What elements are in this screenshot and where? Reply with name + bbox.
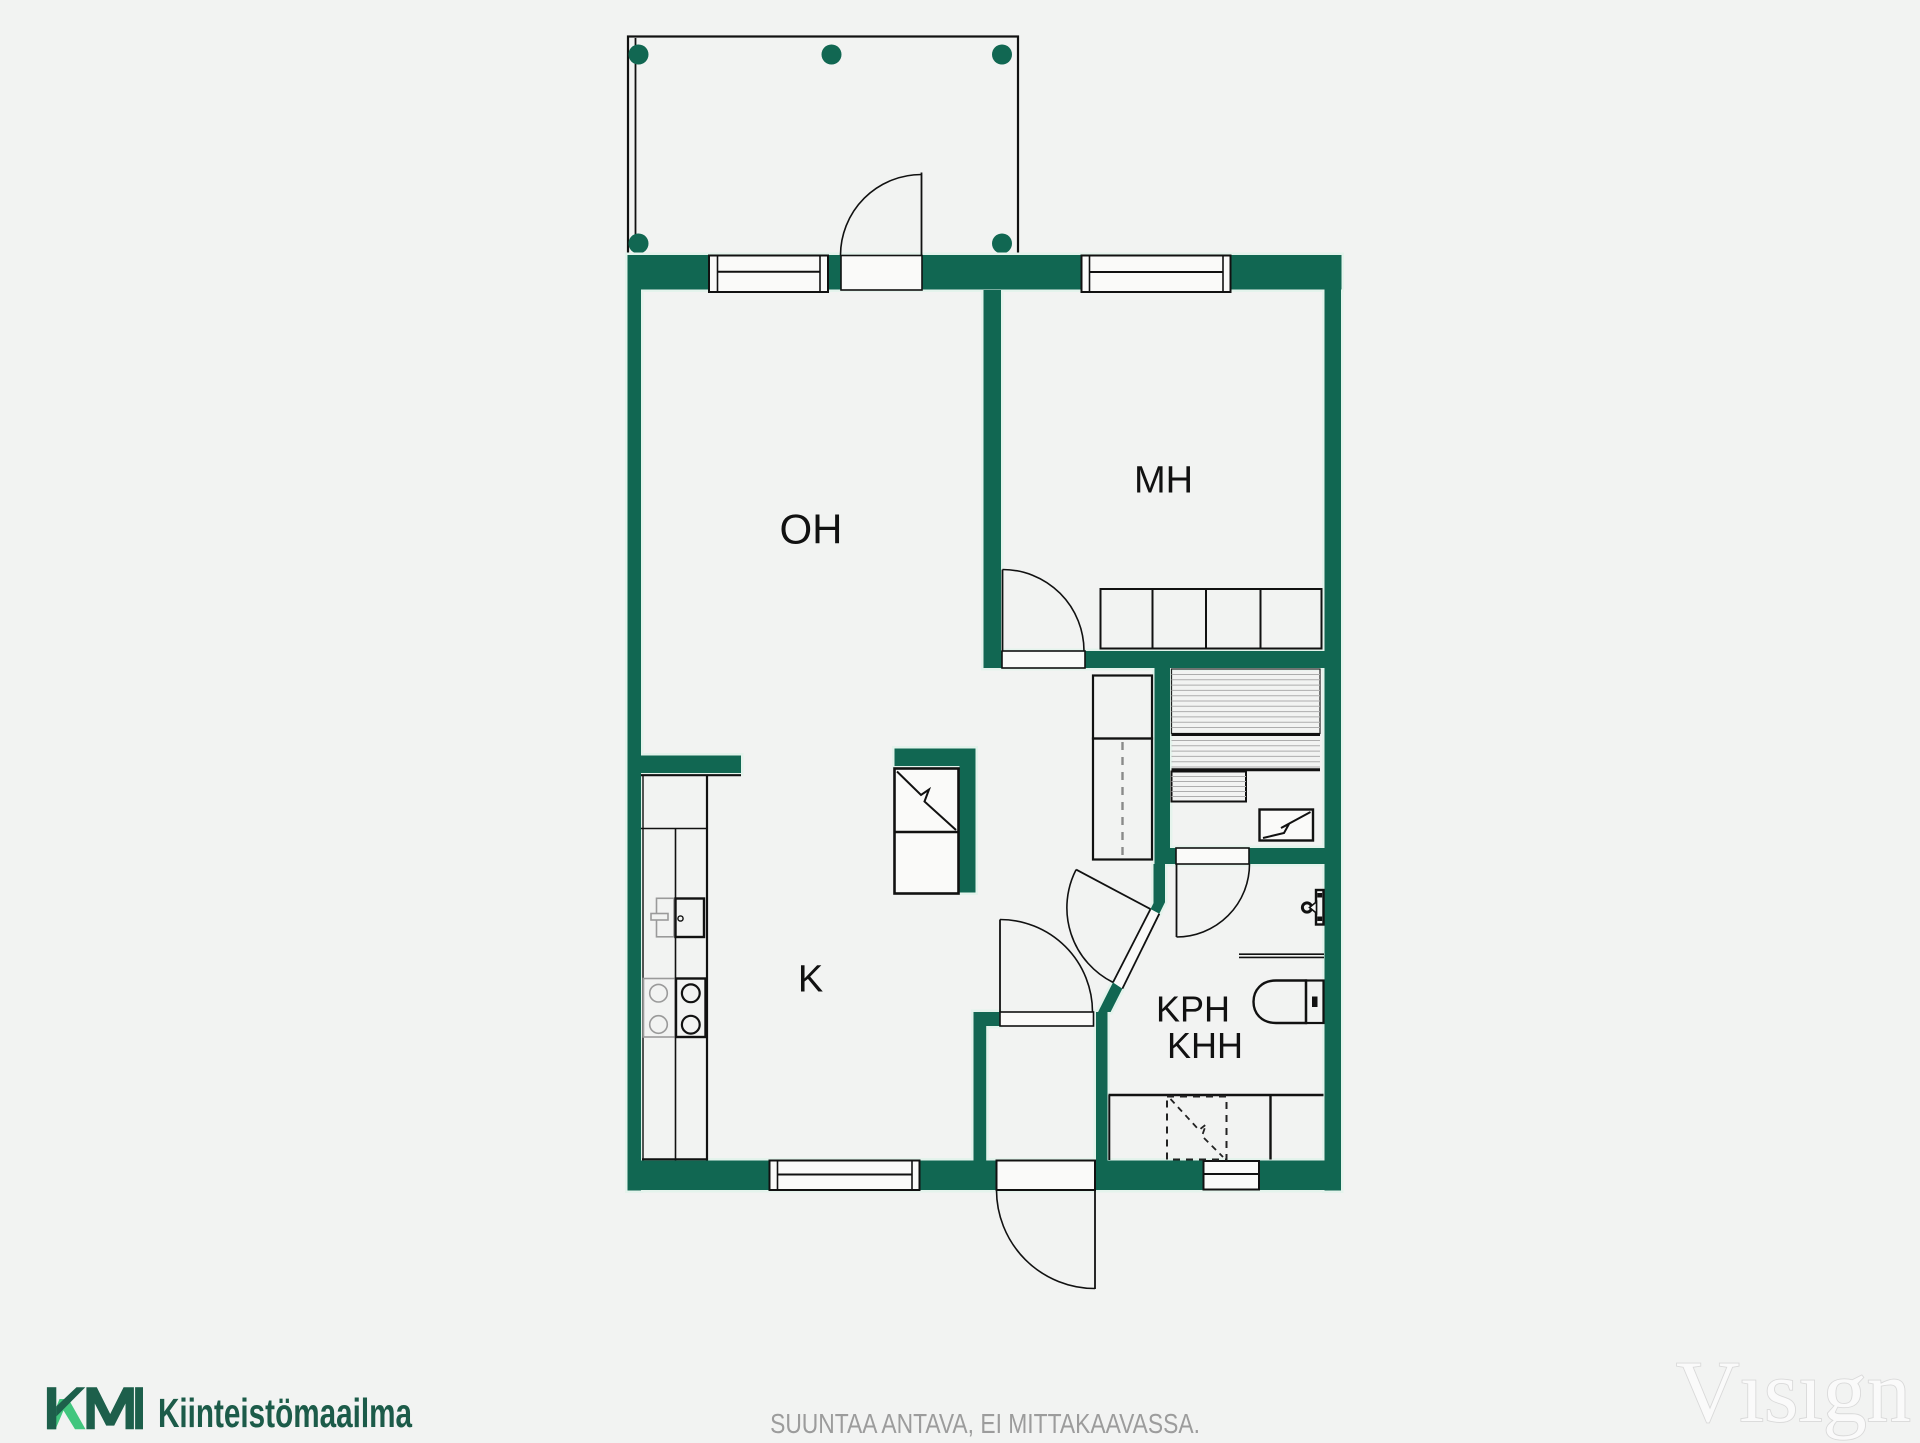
svg-text:SUUNTAA ANTAVA, EI MITTAKAAVAS: SUUNTAA ANTAVA, EI MITTAKAAVASSA.: [770, 1409, 1200, 1440]
svg-text:Kiinteistömaailma: Kiinteistömaailma: [158, 1390, 413, 1436]
svg-text:Vısıgn: Vısıgn: [1676, 1344, 1911, 1441]
svg-text:KPH: KPH: [1156, 989, 1230, 1030]
svg-text:K: K: [798, 959, 823, 1001]
svg-text:KHH: KHH: [1167, 1025, 1243, 1066]
svg-text:OH: OH: [780, 506, 843, 553]
svg-text:MH: MH: [1134, 460, 1193, 502]
